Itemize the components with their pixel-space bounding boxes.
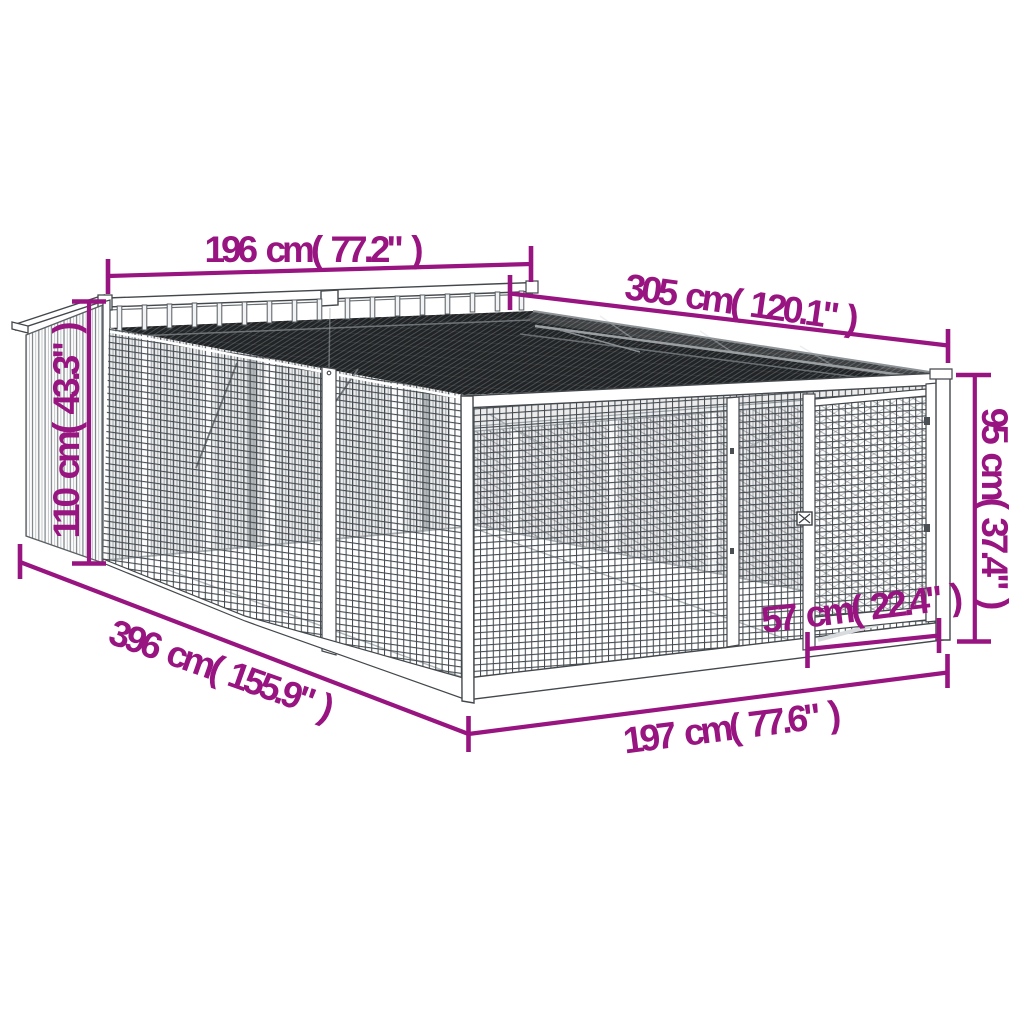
svg-text:196 cm( 77.2" ): 196 cm( 77.2" ): [204, 229, 422, 270]
svg-text:110 cm( 43.3" ): 110 cm( 43.3" ): [46, 323, 87, 539]
svg-text:95 cm( 37.4" ): 95 cm( 37.4" ): [974, 408, 1015, 609]
